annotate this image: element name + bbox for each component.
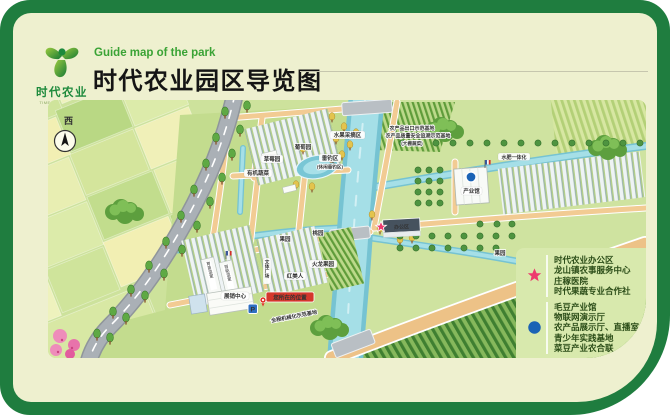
map-label-orchard-r: 果园	[493, 249, 506, 257]
map-label-strawberry: 草莓园	[264, 155, 281, 163]
map-label-cert3: (大棚蔬菜)	[401, 140, 423, 147]
legend-divider	[546, 302, 548, 354]
map-label-cert1: 农产品出口示范基地	[388, 125, 434, 132]
you-are-here-badge: 您所在的位置	[266, 292, 314, 302]
legend-item: 青少年实践基地	[554, 333, 639, 343]
legend-star-icon	[526, 267, 543, 284]
map-label-hall: 产业馆	[463, 187, 480, 195]
map-label-hall-chip: 产业馆	[461, 187, 482, 195]
map-label-cert2: 农产品质量安全追溯示范基地	[384, 133, 450, 140]
map-label-center: 展销中心	[224, 292, 247, 300]
map-label-fishing-sub: (休闲垂钓区)	[317, 164, 343, 171]
map-label-veg: 有机蔬菜	[247, 169, 270, 177]
compass-label: 西	[64, 116, 73, 126]
logo-icon	[42, 44, 82, 78]
park-map-card: 时代农业 TIME AGRICULTURE Guide map of the p…	[0, 0, 670, 415]
header-divider	[300, 71, 648, 72]
map-label-strawberry-chip: 草莓园	[261, 155, 283, 163]
logo: 时代农业 TIME AGRICULTURE	[36, 44, 88, 105]
map-label-redlady: 红美人	[287, 272, 304, 280]
map-label-fert-chip: 水肥一体化	[498, 153, 530, 161]
map-label-office: 办公区	[394, 223, 409, 231]
map-label-picking: 水果采摘区	[334, 131, 362, 139]
blue-dot-marker	[466, 172, 476, 182]
legend-dot-icon	[527, 320, 542, 335]
parking-sign: P	[248, 304, 258, 314]
parking-letter: P	[251, 307, 256, 314]
legend-divider	[546, 255, 548, 297]
map-label-peach: 桃园	[312, 229, 324, 237]
legend-item: 农产品展示厅、直播室	[554, 322, 639, 332]
page-title: 时代农业园区导览图	[93, 61, 323, 96]
map-label-orchard-l: 果园	[278, 235, 291, 243]
legend-item: 时代果蔬专业合作社	[554, 286, 631, 296]
legend-star-group: 时代农业办公区 龙山镇农事服务中心 庄稼医院 时代果蔬专业合作社	[522, 255, 642, 297]
map-label-plaza-chip: 文体广场	[263, 258, 271, 284]
legend-item: 物联网演示厅	[554, 312, 639, 322]
map-area: 育苗温室 智能温室 办公区	[48, 100, 646, 358]
map-label-dragon: 火龙果园	[312, 260, 335, 268]
map-label-picking-chip: 水果采摘区	[330, 131, 365, 139]
map-label-fert: 水肥一体化	[500, 154, 526, 161]
map-label-youarehere: 您所在的位置	[273, 293, 307, 301]
legend-item: 毛豆产业馆	[554, 302, 639, 312]
glass-building	[189, 294, 208, 314]
map-label-center-chip: 展销中心	[221, 292, 249, 300]
map-label-redlady-chip: 红美人	[284, 272, 306, 280]
office-building: 办公区	[383, 218, 421, 237]
legend-item: 龙山镇农事服务中心	[554, 265, 631, 275]
logo-text-cn: 时代农业	[36, 84, 88, 100]
map-label-veg-chip: 有机蔬菜	[244, 169, 272, 177]
map-label-dragon-chip: 火龙果园	[309, 260, 337, 268]
map-label-fishing: 垂钓区	[322, 154, 339, 162]
header-subtitle: Guide map of the park	[94, 47, 215, 59]
legend-dot-group: 毛豆产业馆 物联网演示厅 农产品展示厅、直播室 青少年实践基地 菜豆产业农合联	[522, 302, 642, 354]
map-label-grape: 葡萄园	[294, 143, 312, 151]
legend: 时代农业办公区 龙山镇农事服务中心 庄稼医院 时代果蔬专业合作社 毛豆产业馆 物…	[516, 248, 646, 358]
map-label-plaza: 文体广场	[265, 259, 270, 280]
legend-item: 时代农业办公区	[554, 255, 631, 265]
legend-item: 庄稼医院	[554, 276, 631, 286]
legend-item: 菜豆产业农合联	[554, 343, 639, 353]
